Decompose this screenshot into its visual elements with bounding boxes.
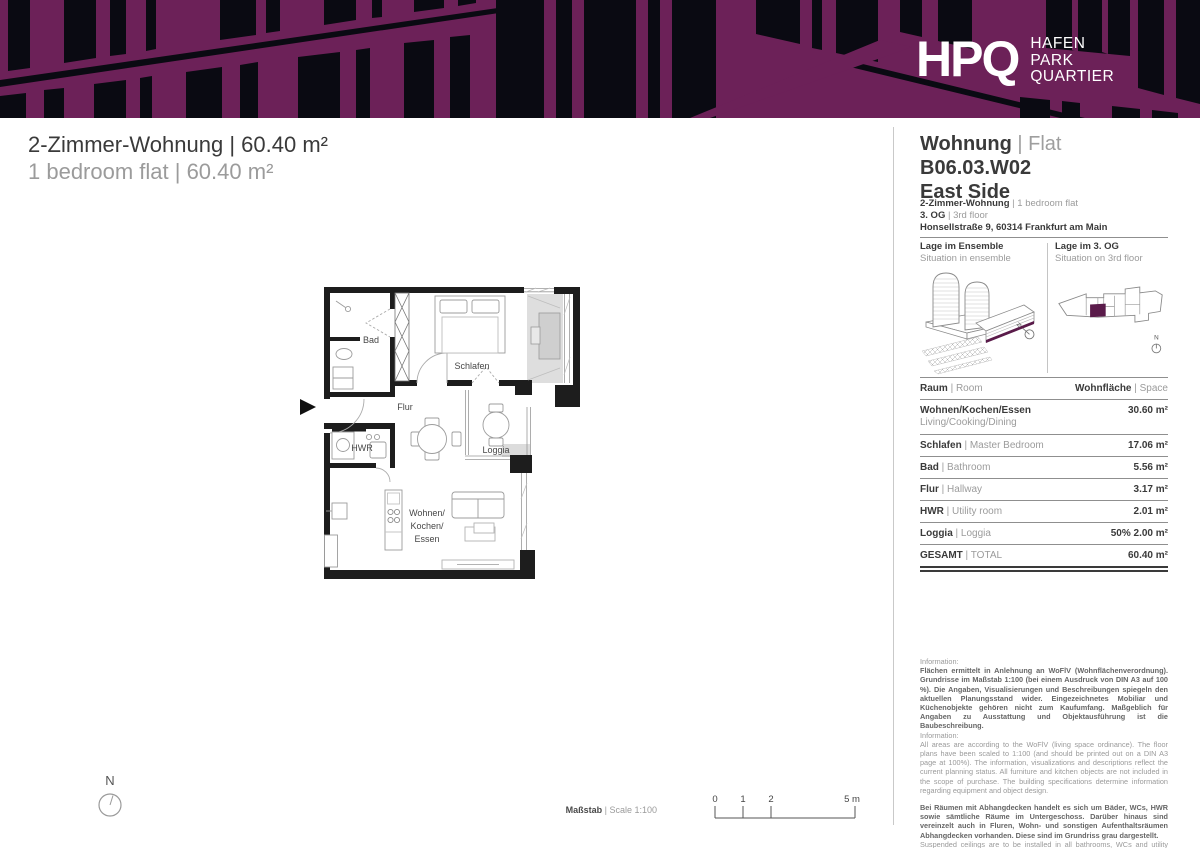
table-row: Bad | Bathroom 5.56 m²	[920, 456, 1168, 478]
ruler-tick-0: 0	[712, 794, 717, 805]
floor-outline-graphic: N	[1055, 278, 1170, 374]
floor-location-diagram: Lage im 3. OG Situation on 3rd floor N	[1055, 241, 1168, 379]
ruler-tick-2: 2	[768, 794, 773, 805]
hpq-logo: HPQ HAFEN PARK QUARTIER	[916, 32, 1114, 86]
room-label-kochen: Kochen/	[410, 521, 444, 531]
legal-paragraph: Flächen ermittelt in Anlehnung an WoFlV …	[920, 666, 1168, 730]
flat-heading-flat: | Flat	[1012, 133, 1062, 155]
ensemble-diagram: Lage im Ensemble Situation in ensemble	[920, 241, 1040, 382]
hrule	[920, 237, 1168, 238]
location-diagrams: Lage im Ensemble Situation in ensemble	[920, 241, 1168, 376]
legal-info-label-de: Information:	[920, 657, 1168, 666]
flat-heading: Wohnung | Flat B06.03.W02 East Side	[920, 132, 1168, 204]
hpq-logo-acronym: HPQ	[916, 32, 1018, 86]
highlighted-unit	[1090, 304, 1106, 318]
table-row: Schlafen | Master Bedroom 17.06 m²	[920, 434, 1168, 456]
room-label-hwr: HWR	[351, 443, 373, 453]
legal-info-label-en: Information:	[920, 731, 1168, 740]
header-banner: HPQ HAFEN PARK QUARTIER	[0, 0, 1200, 118]
scale-label: Maßstab | Scale 1:100	[535, 805, 657, 815]
scale-ruler: 0 1 2 5 m	[710, 792, 862, 824]
ensemble-graphic: N	[920, 267, 1045, 377]
entrance-arrow-icon	[300, 399, 316, 415]
north-compass: N	[94, 772, 128, 826]
page-title-de: 2-Zimmer-Wohnung | 60.40 m²	[28, 131, 328, 158]
street-address: Honsellstraße 9, 60314 Frankfurt am Main	[920, 222, 1107, 233]
table-row: HWR | Utility room 2.01 m²	[920, 500, 1168, 522]
brochure-page: HPQ HAFEN PARK QUARTIER 2-Zimmer-Wohnung…	[0, 0, 1200, 848]
panel-divider	[893, 127, 894, 825]
room-label-wohnen: Wohnen/	[409, 508, 445, 518]
room-label-loggia: Loggia	[482, 445, 509, 455]
floor-north-label: N	[1154, 335, 1159, 342]
ruler-tick-1: 1	[740, 794, 745, 805]
ruler-tick-5: 5 m	[844, 794, 860, 805]
legal-text: Information: Flächen ermittelt in Anlehn…	[920, 657, 1168, 848]
page-title: 2-Zimmer-Wohnung | 60.40 m² 1 bedroom fl…	[28, 131, 328, 185]
hpq-logo-words: HAFEN PARK QUARTIER	[1030, 36, 1114, 86]
table-total-rule	[920, 566, 1168, 572]
diagram-divider	[1047, 243, 1048, 373]
room-label-essen: Essen	[414, 534, 439, 544]
table-row: Flur | Hallway 3.17 m²	[920, 478, 1168, 500]
legal-paragraph: Suspended ceilings are to be installed i…	[920, 840, 1168, 848]
legal-paragraph: Bei Räumen mit Abhangdecken handelt es s…	[920, 803, 1168, 840]
table-row: Wohnen/Kochen/Essen Living/Cooking/Dinin…	[920, 399, 1168, 434]
floor-plan: Bad Schlafen Flur HWR Loggia Wohnen/ Koc…	[296, 287, 582, 579]
legal-paragraph: All areas are according to the WoFlV (li…	[920, 740, 1168, 795]
north-label: N	[105, 773, 114, 788]
compass-needle	[110, 796, 113, 806]
room-label-flur: Flur	[397, 402, 413, 412]
table-row-total: GESAMT | TOTAL 60.40 m²	[920, 544, 1168, 566]
table-row: Loggia | Loggia 50% 2.00 m²	[920, 522, 1168, 544]
address-block: 2-Zimmer-Wohnung | 1 bedroom flat 3. OG …	[920, 198, 1168, 234]
page-title-en: 1 bedroom flat | 60.40 m²	[28, 158, 328, 185]
flat-heading-de: Wohnung	[920, 133, 1012, 155]
table-header: Raum | Room Wohnfläche | Space	[920, 377, 1168, 399]
flat-code: B06.03.W02	[920, 157, 1031, 179]
room-table: Raum | Room Wohnfläche | Space Wohnen/Ko…	[920, 377, 1168, 572]
room-label-schlafen: Schlafen	[454, 361, 489, 371]
room-label-bad: Bad	[363, 335, 379, 345]
